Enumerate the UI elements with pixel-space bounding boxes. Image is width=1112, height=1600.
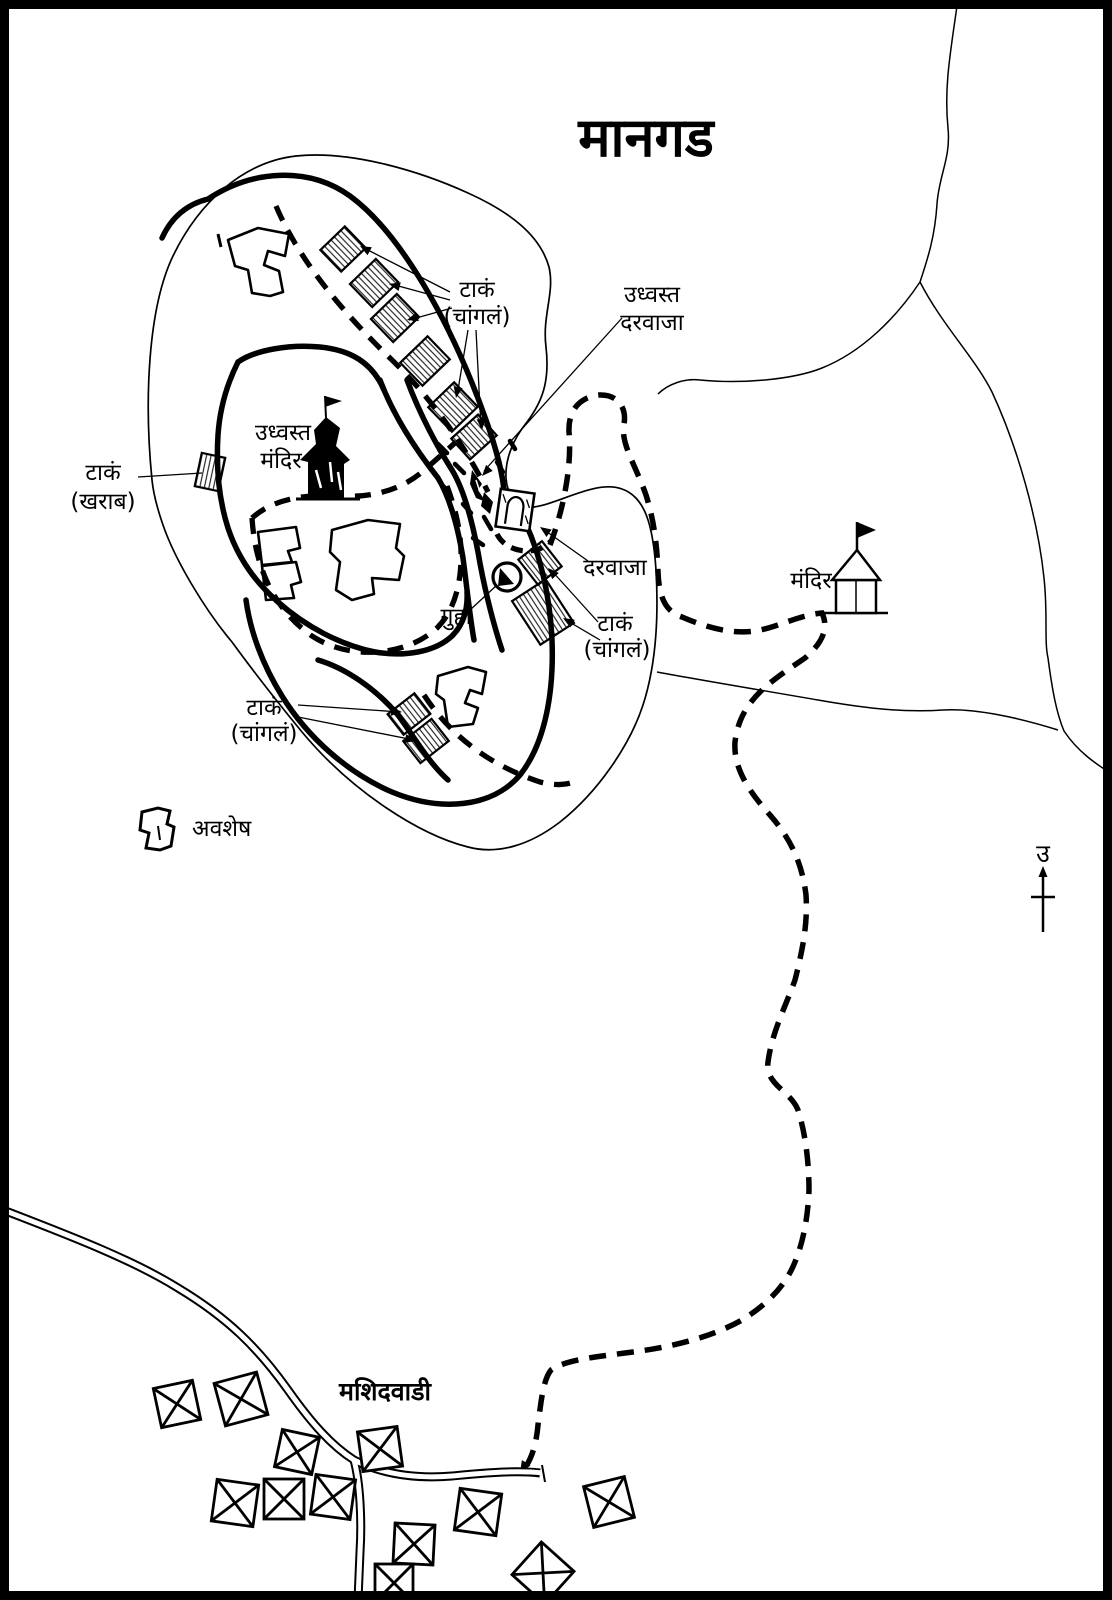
house-icon [310, 1474, 355, 1519]
label-tank-good-north-2: (चांगलं) [443, 304, 510, 330]
plateau-top-edge [238, 346, 384, 390]
map-page: उ अवशेष मानगड टाकं (चांगलं) उध्वस्त दरवा… [0, 0, 1112, 1600]
house-icon [584, 1477, 635, 1528]
map-title: मानगड [577, 106, 716, 169]
fort-walls [162, 175, 552, 804]
house-icon [211, 1479, 258, 1526]
label-tank-good-south-1: टाकं [246, 695, 283, 721]
label-ruined-gate-1: उध्वस्त [624, 282, 681, 308]
label-ruined-temple-1: उध्वस्त [255, 420, 312, 446]
ruin-icon [330, 520, 404, 600]
village-road [0, 1208, 545, 1600]
north-indicator: उ [1031, 839, 1055, 932]
label-tank-good-east-2: (चांगलं) [583, 637, 650, 663]
hill-outline [148, 155, 657, 850]
label-ruined-gate-2: दरवाजा [620, 310, 684, 336]
label-tank-good-east-1: टाकं [597, 611, 634, 637]
stream-branch-south [920, 282, 1112, 774]
north-letter: उ [1036, 839, 1051, 868]
house-icon [393, 1523, 435, 1565]
tank-icon [512, 579, 574, 644]
tank-icon [518, 541, 561, 585]
plateau-loop-lower [252, 486, 461, 652]
flag-icon [325, 396, 342, 407]
legend: अवशेष [140, 808, 252, 850]
house-icon [153, 1380, 200, 1427]
label-tank-good-north-1: टाकं [459, 277, 496, 303]
label-ruined-temple-2: मंदिर [260, 447, 302, 474]
ruin-icon [228, 228, 289, 296]
stream-branch-west [658, 282, 920, 394]
temple-icon [822, 522, 888, 613]
trail-to-village [522, 395, 825, 1472]
mangad-fort-map: उ अवशेष मानगड टाकं (चांगलं) उध्वस्त दरवा… [0, 0, 1112, 1600]
ruined-gate-icon [470, 470, 493, 514]
house-icon [264, 1479, 304, 1519]
label-temple: मंदिर [790, 567, 832, 594]
ruin-icon [258, 527, 300, 565]
cave-icon [493, 563, 521, 591]
label-tank-bad-2: (खराब) [70, 489, 135, 515]
legend-ruin-icon [140, 808, 174, 850]
page-border [5, 5, 1108, 1596]
map-labels: मानगड टाकं (चांगलं) उध्वस्त दरवाजा टाकं … [70, 106, 832, 1406]
ruined-temple-icon [296, 396, 360, 499]
tank-icon [320, 226, 365, 271]
label-tank-good-south-2: (चांगलं) [230, 721, 297, 747]
stream-east [657, 672, 1058, 730]
village-houses [153, 1372, 634, 1600]
legend-ruins-label: अवशेष [192, 815, 252, 842]
stream-north [920, 6, 957, 282]
label-cave: गुहा [440, 604, 472, 631]
house-icon [214, 1372, 268, 1426]
streams [657, 6, 1112, 774]
gate-icon [496, 489, 535, 531]
flag-icon [857, 522, 876, 538]
label-village: मशिदवाडी [338, 1377, 432, 1406]
label-tank-bad-1: टाकं [85, 460, 122, 486]
house-icon [454, 1488, 501, 1535]
house-icon [274, 1429, 319, 1474]
label-gate: दरवाजा [583, 555, 647, 581]
house-icon [357, 1426, 402, 1471]
